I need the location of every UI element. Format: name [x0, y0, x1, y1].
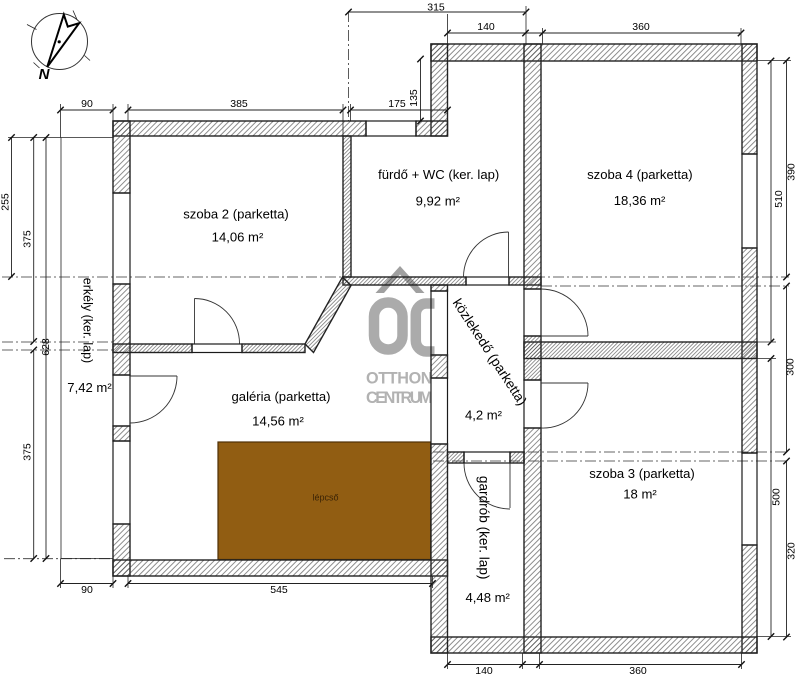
svg-text:90: 90	[81, 98, 93, 110]
svg-text:4,48 m²: 4,48 m²	[466, 590, 511, 605]
svg-text:300: 300	[785, 358, 797, 376]
svg-text:255: 255	[0, 193, 12, 211]
svg-text:7,42 m²: 7,42 m²	[67, 380, 112, 395]
svg-text:14,06 m²: 14,06 m²	[212, 230, 264, 245]
svg-text:szoba 2 (parketta): szoba 2 (parketta)	[183, 207, 289, 222]
svg-text:390: 390	[786, 163, 798, 181]
svg-text:lépcső: lépcső	[312, 493, 338, 503]
svg-text:360: 360	[629, 665, 647, 677]
svg-text:N: N	[39, 66, 51, 83]
svg-text:fürdő + WC (ker. lap): fürdő + WC (ker. lap)	[378, 167, 499, 182]
svg-text:628: 628	[40, 338, 52, 356]
svg-text:510: 510	[773, 190, 785, 208]
svg-text:szoba 4 (parketta): szoba 4 (parketta)	[587, 167, 693, 182]
svg-text:500: 500	[771, 488, 783, 506]
svg-text:9,92 m²: 9,92 m²	[416, 194, 461, 209]
svg-text:OTTHON: OTTHON	[366, 370, 433, 388]
svg-text:375: 375	[22, 230, 34, 248]
svg-text:18 m²: 18 m²	[623, 487, 657, 502]
svg-text:18,36 m²: 18,36 m²	[614, 193, 666, 208]
svg-text:385: 385	[230, 98, 248, 110]
svg-text:375: 375	[22, 443, 34, 461]
svg-text:545: 545	[270, 584, 288, 596]
svg-text:galéria (parketta): galéria (parketta)	[232, 389, 331, 404]
svg-text:135: 135	[408, 89, 420, 107]
svg-text:90: 90	[81, 584, 93, 596]
svg-text:gardrób (ker. lap): gardrób (ker. lap)	[477, 476, 492, 580]
svg-text:140: 140	[475, 665, 493, 677]
svg-text:szoba 3 (parketta): szoba 3 (parketta)	[589, 466, 695, 481]
svg-text:14,56 m²: 14,56 m²	[252, 414, 304, 429]
svg-text:315: 315	[427, 2, 445, 14]
svg-text:140: 140	[477, 21, 495, 33]
svg-text:320: 320	[786, 542, 798, 560]
svg-text:175: 175	[388, 98, 406, 110]
svg-text:erkély (ker. lap): erkély (ker. lap)	[81, 278, 95, 363]
svg-text:360: 360	[632, 21, 650, 33]
svg-text:4,2 m²: 4,2 m²	[465, 408, 503, 423]
svg-text:CENTRUM: CENTRUM	[366, 389, 433, 407]
